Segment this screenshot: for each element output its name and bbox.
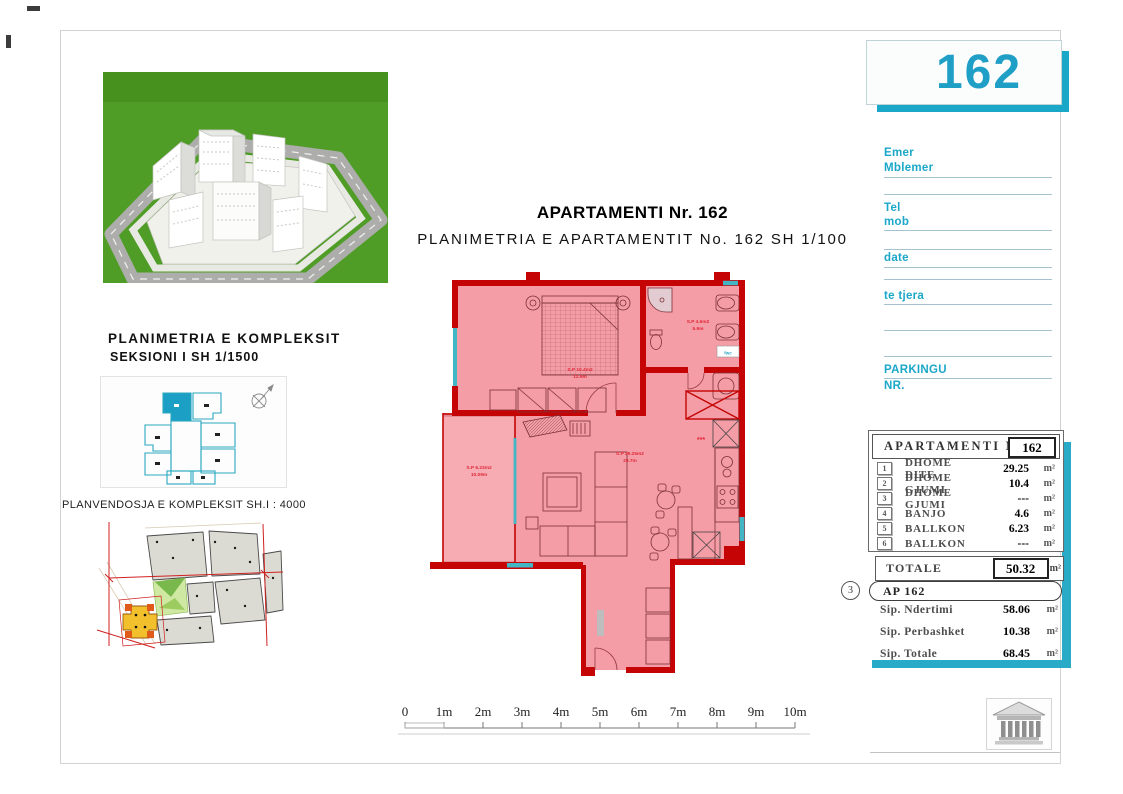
summary-name: Sip. Perbashket	[880, 626, 984, 638]
totale-value: 50.32	[993, 558, 1049, 579]
rooms-table-number: 162	[1008, 437, 1056, 458]
summary-row: Sip. Ndertimi 58.06 m²	[880, 602, 1058, 617]
scale-tick: 7m	[663, 704, 693, 720]
form-line	[884, 378, 1052, 379]
site-plan	[95, 518, 285, 650]
row-unit: m²	[1029, 508, 1055, 519]
row-value: ---	[985, 493, 1029, 505]
summary-unit: m²	[1030, 626, 1058, 637]
render-3d-complex	[103, 72, 388, 283]
row-unit: m²	[1029, 538, 1055, 549]
company-logo-box	[986, 698, 1052, 750]
row-unit: m²	[1029, 523, 1055, 534]
row-name: BANJO	[905, 508, 985, 520]
scale-tick: 3m	[507, 704, 537, 720]
form-label-parkingu: PARKINGU	[884, 364, 947, 376]
form-line	[884, 177, 1052, 178]
site-plan-label: PLANVENDOSJA E KOMPLEKSIT SH.I : 4000	[62, 499, 306, 511]
floor-plan: S.P 10.4m2 12.9m S.P 4.6m2 5.9m S.P 29.2…	[430, 270, 762, 700]
form-label-emer: Emer	[884, 147, 914, 159]
scale-tick: 6m	[624, 704, 654, 720]
row-value: 29.25	[985, 463, 1029, 475]
summary-value: 58.06	[984, 602, 1030, 617]
table-row: 4 BANJO 4.6 m²	[869, 506, 1063, 521]
komplex-heading-line1: PLANIMETRIA E KOMPLEKSIT	[108, 331, 341, 346]
table-row: 3 DHOME GJUMI --- m²	[869, 491, 1063, 506]
scale-ruler	[398, 720, 810, 738]
label-bedroom-area: S.P 10.4m2	[567, 367, 593, 373]
form-label-tel: Tel	[884, 202, 901, 214]
row-no: 6	[877, 537, 892, 550]
summary-unit: m²	[1030, 648, 1058, 659]
card-shadow-bottom	[872, 660, 1071, 668]
scale-tick: 9m	[741, 704, 771, 720]
summary-row: Sip. Perbashket 10.38 m²	[880, 624, 1058, 639]
komplex-heading-line2: SEKSIONI I SH 1/1500	[110, 350, 259, 364]
classical-temple-icon	[987, 699, 1051, 749]
scale-tick: 0	[390, 704, 420, 720]
page-title: APARTAMENTI Nr. 162	[425, 203, 840, 223]
summary-unit: m²	[1030, 604, 1058, 615]
row-name: BALLKON	[905, 538, 985, 550]
table-row: 5 BALLKON 6.23 m²	[869, 521, 1063, 536]
totale-box: TOTALE 50.32 m²	[875, 556, 1064, 581]
row-unit: m²	[1029, 463, 1055, 474]
scale-tick: 2m	[468, 704, 498, 720]
form-line	[884, 194, 1052, 195]
summary-row: Sip. Totale 68.45 m²	[880, 646, 1058, 661]
label-stars: ***	[697, 437, 705, 444]
form-line	[884, 249, 1052, 250]
form-line	[884, 304, 1052, 305]
row-no: 1	[877, 462, 892, 475]
crop-mark-top	[27, 6, 40, 11]
row-no: 2	[877, 477, 892, 490]
apartment-number-box: 162	[866, 40, 1062, 105]
scale-tick: 5m	[585, 704, 615, 720]
totale-label: TOTALE	[886, 561, 993, 576]
row-name: BALLKON	[905, 523, 985, 535]
table-row: 6 BALLKON --- m²	[869, 536, 1063, 551]
summary-name: Sip. Totale	[880, 648, 984, 660]
form-line	[884, 267, 1052, 268]
row-value: 10.4	[985, 478, 1029, 490]
form-line	[884, 356, 1052, 357]
apartment-number: 162	[936, 45, 1022, 100]
summary-marker: 3	[841, 581, 860, 600]
form-label-tetjera: te tjera	[884, 290, 924, 302]
page-subtitle: PLANIMETRIA E APARTAMENTIT No. 162 SH 1/…	[385, 231, 880, 248]
row-no: 5	[877, 522, 892, 535]
totale-unit: m²	[1050, 563, 1061, 574]
summary-name: Sip. Ndertimi	[880, 604, 984, 616]
form-line	[884, 279, 1052, 280]
form-label-mob: mob	[884, 216, 909, 228]
row-no: 4	[877, 507, 892, 520]
ap-label: AP 162	[883, 584, 925, 599]
drawing-sheet: PLANIMETRIA E KOMPLEKSIT SEKSIONI I SH 1…	[0, 0, 1123, 794]
section-diagram	[101, 377, 286, 487]
form-line	[884, 330, 1052, 331]
row-value: 4.6	[985, 508, 1029, 520]
compass-icon	[252, 385, 273, 408]
balcony-area	[443, 416, 515, 562]
ap-label-pill: AP 162	[869, 581, 1062, 601]
form-label-nr: NR.	[884, 380, 905, 392]
form-label-date: date	[884, 252, 909, 264]
label-bath-area: S.P 4.6m2	[687, 319, 710, 325]
row-unit: m²	[1029, 478, 1055, 489]
label-living-area: S.P 29.25m2	[616, 451, 644, 457]
scale-tick: 10m	[780, 704, 810, 720]
row-value: ---	[985, 538, 1029, 550]
scale-tick: 8m	[702, 704, 732, 720]
label-balcony-perimeter: 10.09m	[471, 472, 487, 478]
form-line	[884, 230, 1052, 231]
scale-tick: 4m	[546, 704, 576, 720]
scale-bar: 0 1m 2m 3m 4m 5m 6m 7m 8m 9m 10m	[398, 704, 810, 738]
summary-value: 68.45	[984, 646, 1030, 661]
label-fwc: fwc	[724, 351, 732, 356]
scale-tick: 1m	[429, 704, 459, 720]
section-diagram-box	[100, 376, 287, 488]
crop-mark-left	[6, 35, 11, 48]
row-value: 6.23	[985, 523, 1029, 535]
label-bath-perimeter: 5.9m	[693, 326, 704, 332]
row-no: 3	[877, 492, 892, 505]
rooms-table-header: APARTAMENTI NR. 162	[872, 434, 1060, 459]
rooms-table: APARTAMENTI NR. 162 1 DHOME DITE 29.25 m…	[868, 430, 1064, 552]
row-unit: m²	[1029, 493, 1055, 504]
label-bedroom-perimeter: 12.9m	[573, 374, 587, 380]
summary-value: 10.38	[984, 624, 1030, 639]
label-living-perimeter: 29.7m	[623, 458, 637, 464]
form-label-mblemer: Mblemer	[884, 162, 933, 174]
label-balcony-area: S.P 6.23m2	[466, 465, 492, 471]
titleblock-line	[870, 752, 1060, 753]
